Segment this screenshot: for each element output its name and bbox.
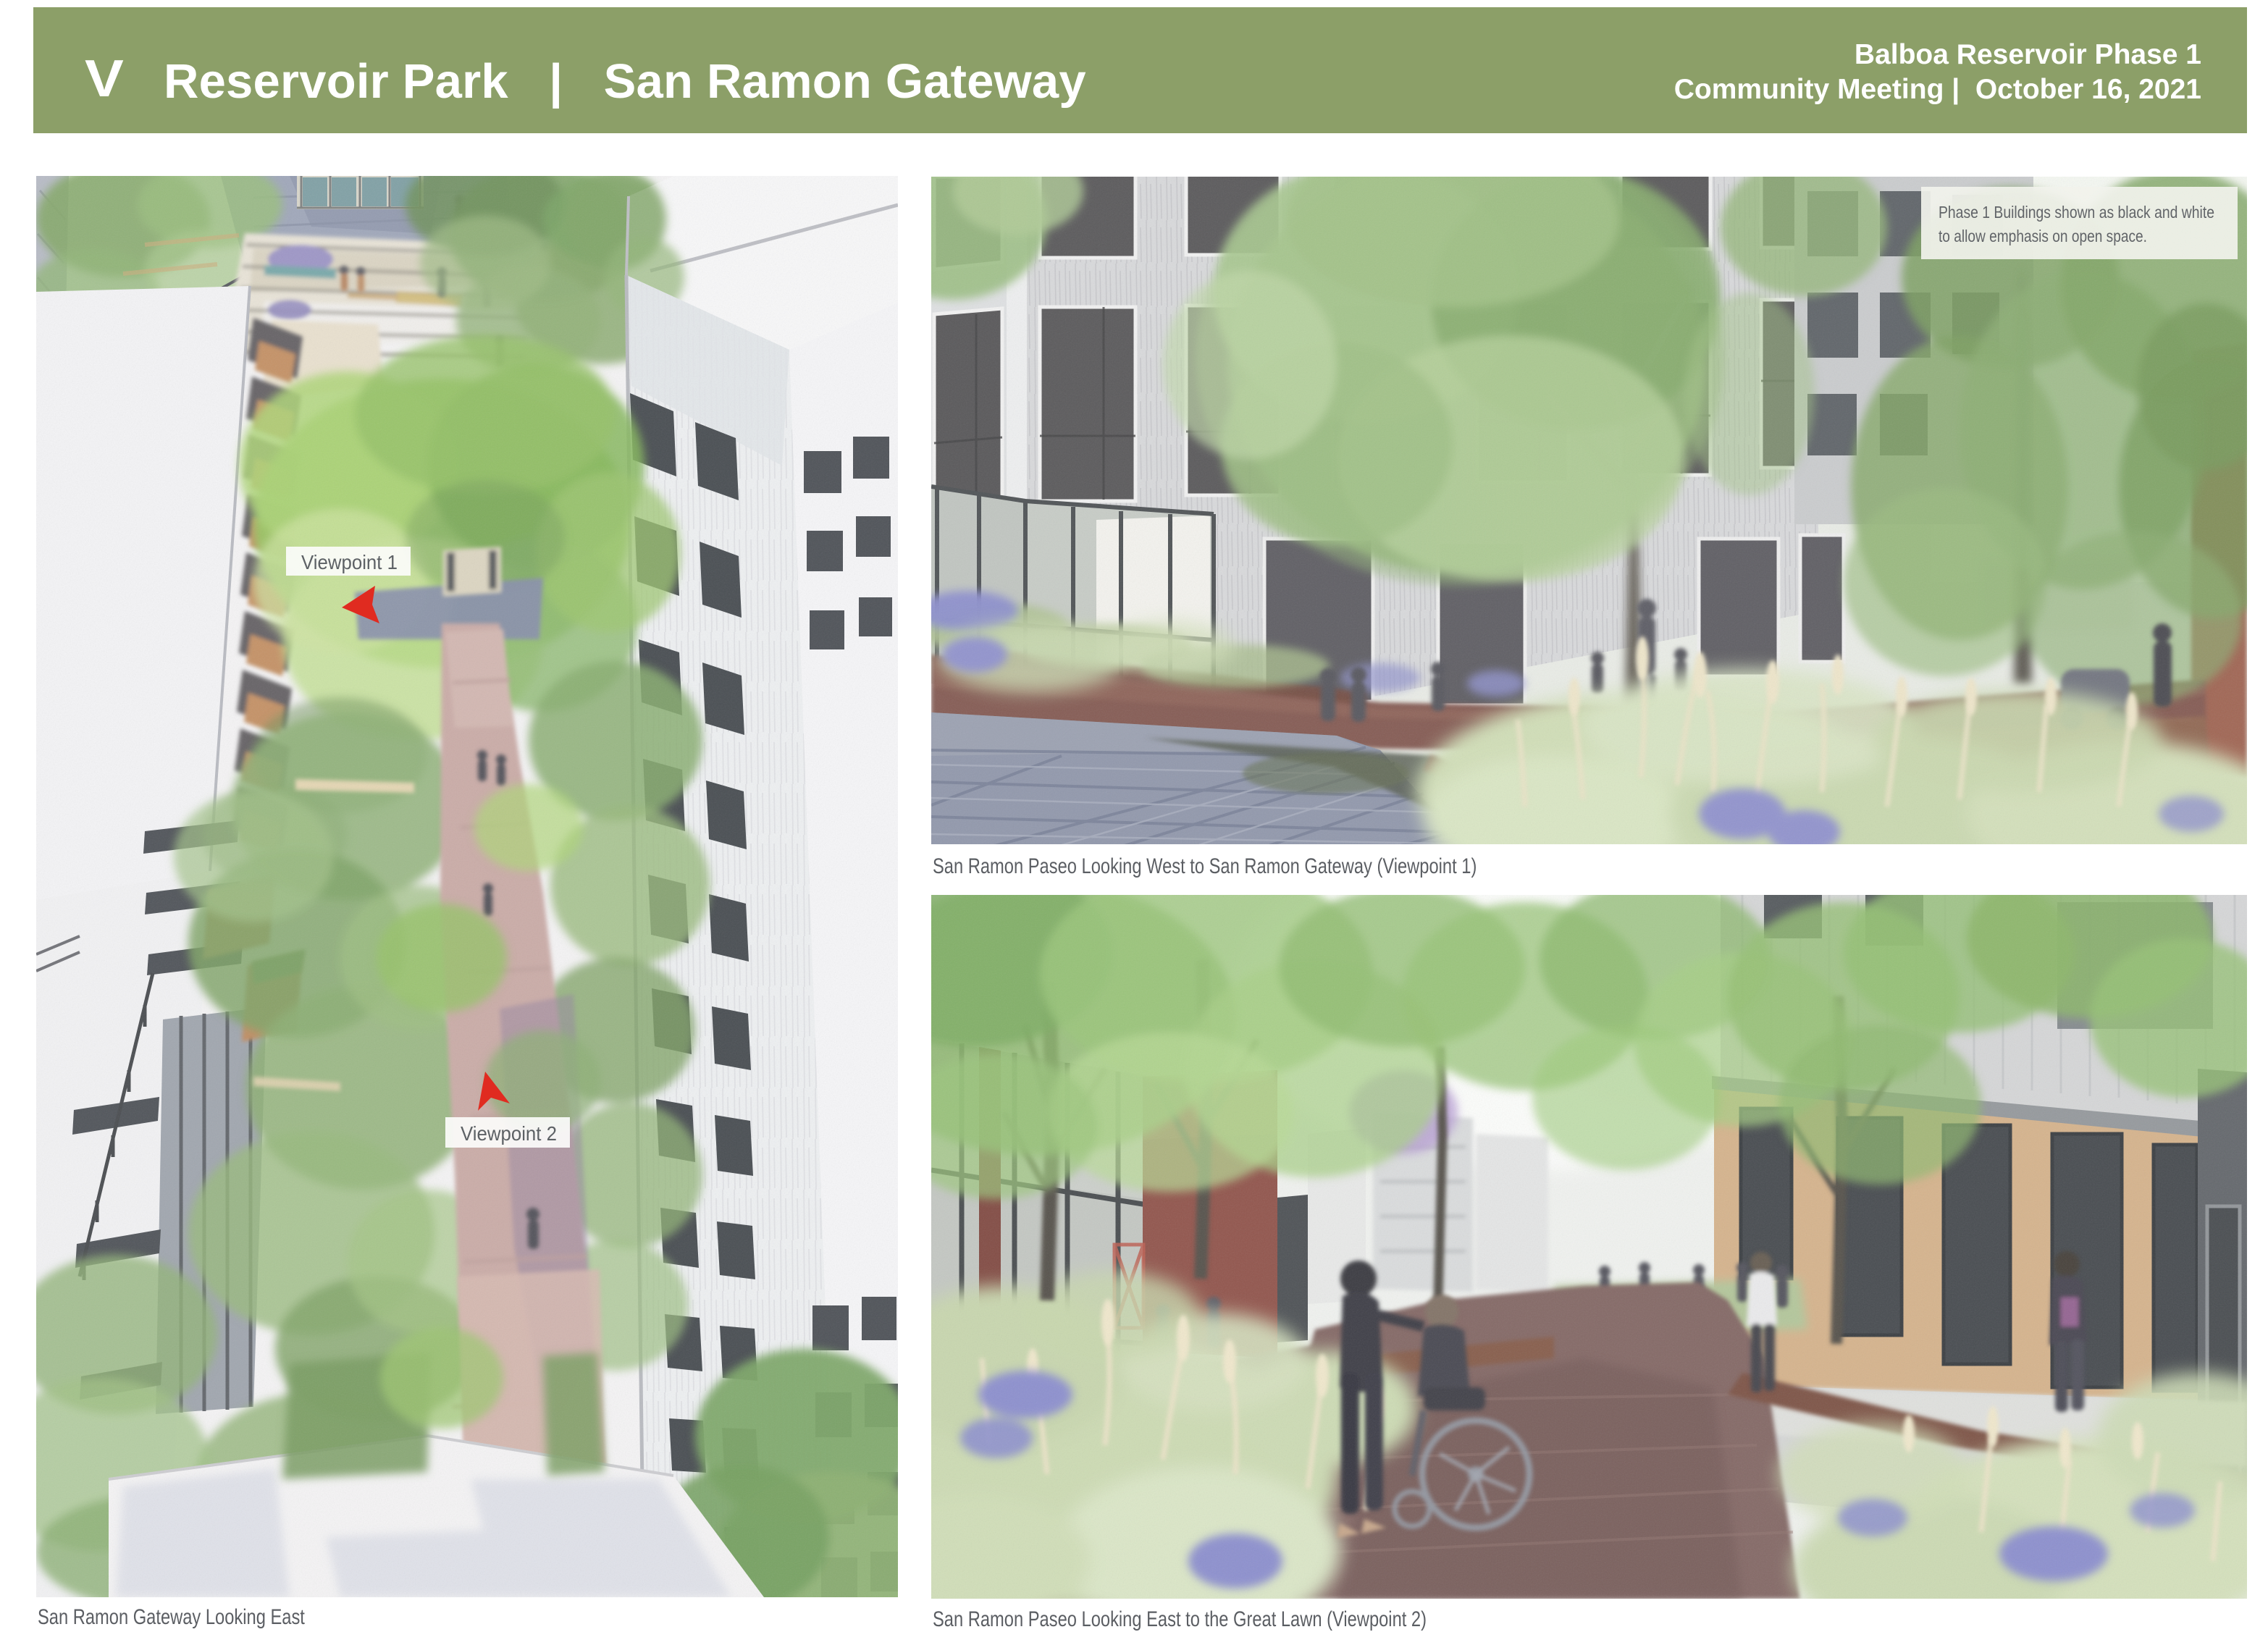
svg-text:Phase 1 Buildings shown as bla: Phase 1 Buildings shown as black and whi… [1939,203,2214,222]
svg-text:Viewpoint 1: Viewpoint 1 [301,551,398,573]
svg-text:Viewpoint 2: Viewpoint 2 [461,1122,557,1145]
svg-text:to allow emphasis on open spac: to allow emphasis on open space. [1939,227,2147,245]
